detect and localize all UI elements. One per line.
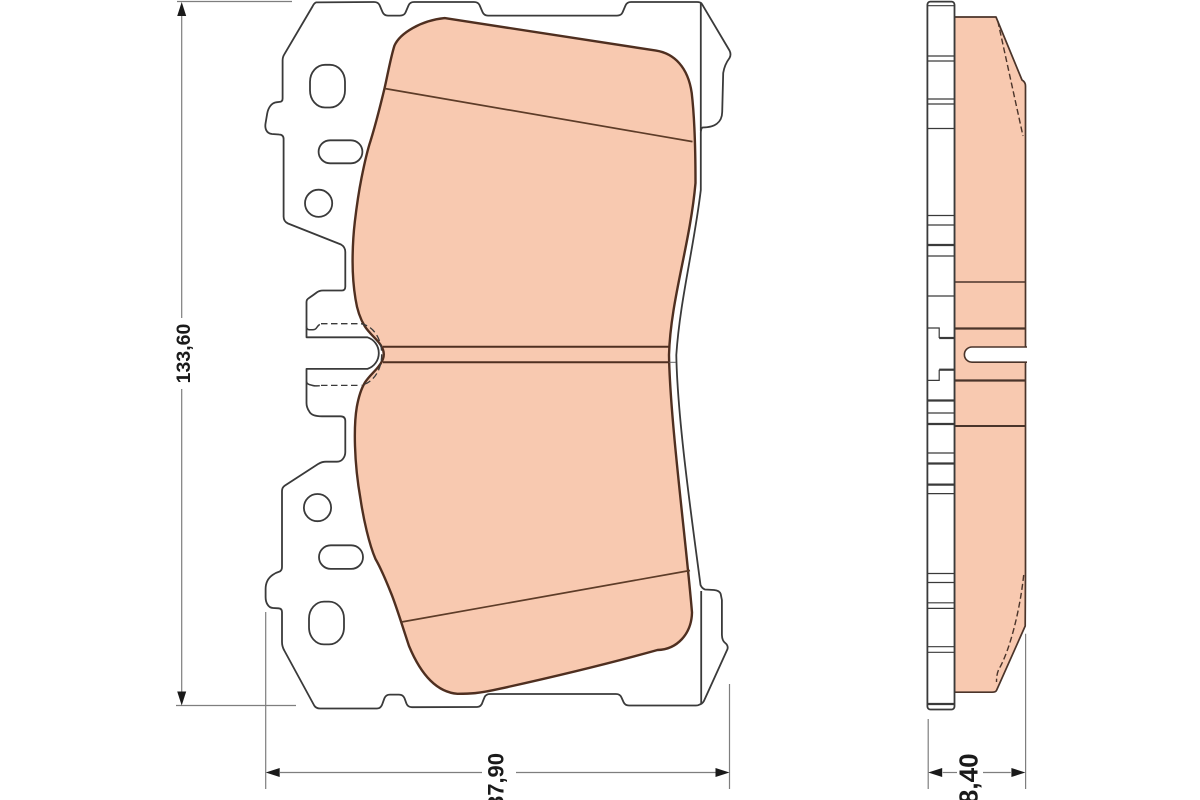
svg-text:133,60: 133,60 bbox=[173, 324, 195, 384]
svg-text:18,40: 18,40 bbox=[954, 753, 984, 800]
svg-text:87,90: 87,90 bbox=[484, 753, 509, 800]
